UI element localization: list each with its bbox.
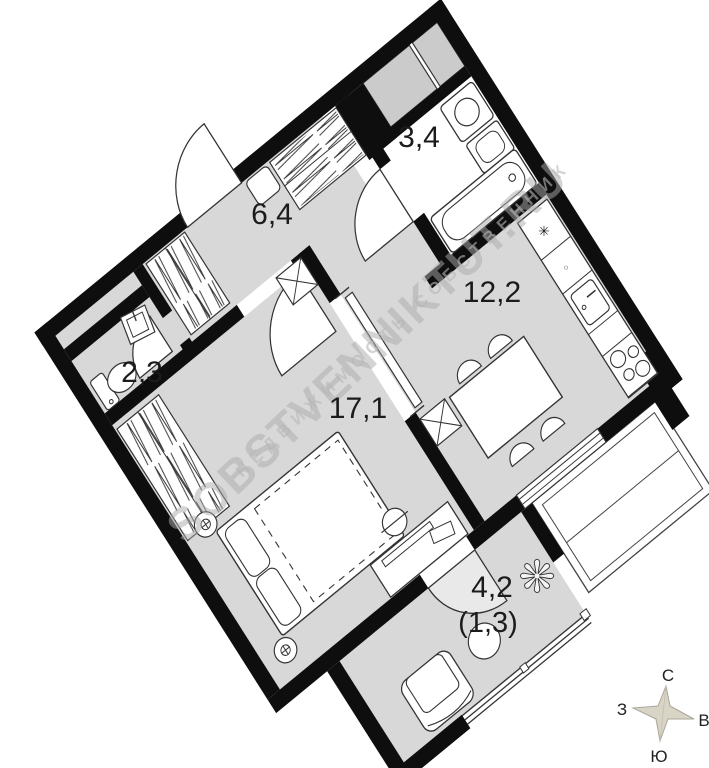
compass-east: В xyxy=(698,711,709,730)
stove-icon: ✳ xyxy=(538,224,550,240)
compass-west: З xyxy=(617,700,627,719)
compass-star-icon xyxy=(633,686,694,741)
floorplan-svg: SOBSTVENNIKTUT.RU НЕДВИЖИМОСТЬ СОБСТВЕНН… xyxy=(0,0,709,768)
label-balcony: 4,2 xyxy=(471,571,513,604)
label-kitchen: 12,2 xyxy=(463,276,521,309)
drain-icon: ◦ xyxy=(562,261,569,275)
label-balcony-secondary: (1,3) xyxy=(458,607,518,639)
compass-south: Ю xyxy=(650,747,667,766)
label-hallway: 6,4 xyxy=(251,198,293,231)
label-living: 17,1 xyxy=(329,392,387,425)
label-wc: 2,3 xyxy=(121,356,163,389)
label-bathroom: 3,4 xyxy=(398,121,440,154)
compass-north: С xyxy=(662,666,674,685)
floorplan-page: SOBSTVENNIKTUT.RU НЕДВИЖИМОСТЬ СОБСТВЕНН… xyxy=(0,0,709,768)
compass: С В Ю З xyxy=(617,666,709,766)
plant-icon: ❋ xyxy=(519,552,556,603)
